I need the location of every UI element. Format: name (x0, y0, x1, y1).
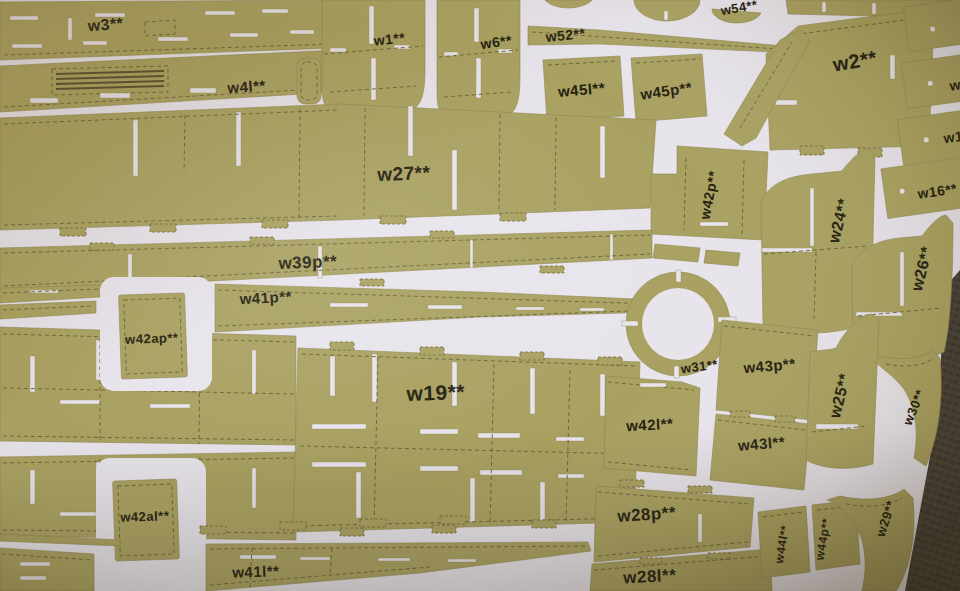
model-sheet-scene: w3** w4l** w1** w6** w52** w54** w45l** … (0, 0, 960, 591)
photo-cardboard-model-parts-sheet: w3** w4l** w1** w6** w52** w54** w45l** … (0, 0, 960, 591)
bottom-shadow-overlay (0, 0, 960, 591)
